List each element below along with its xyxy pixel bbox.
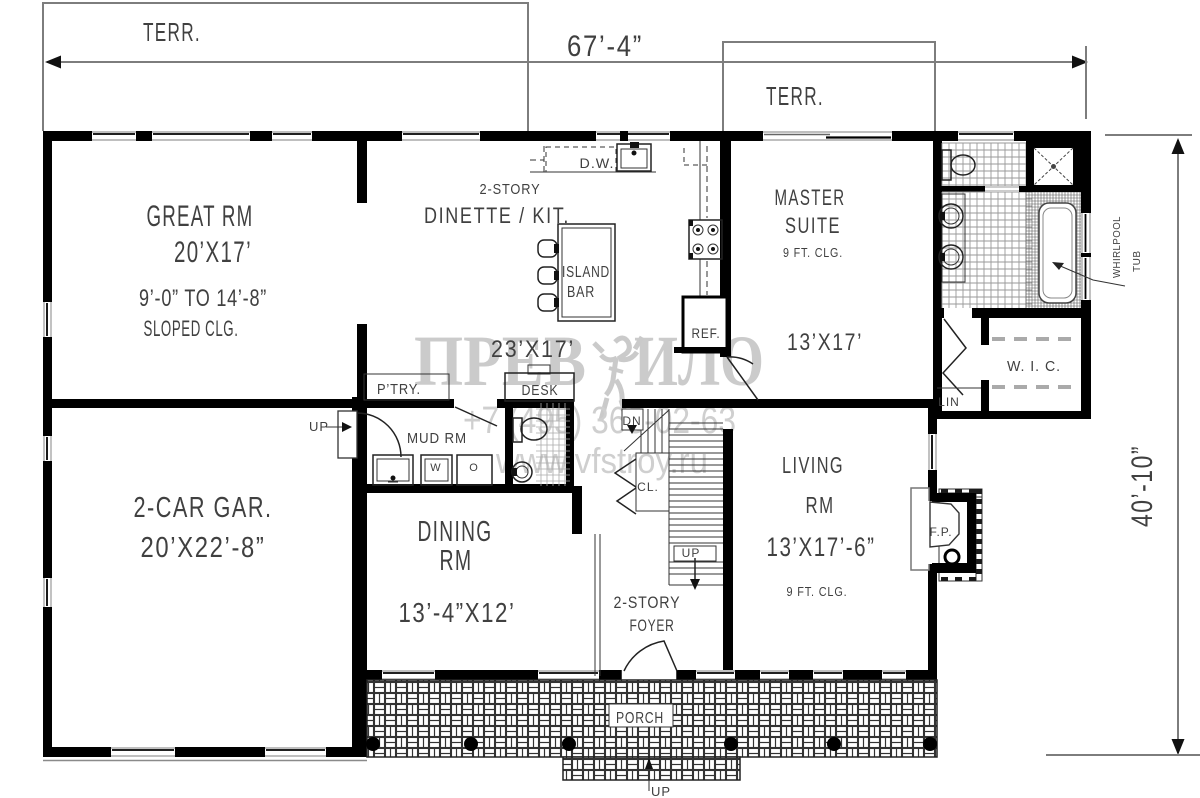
svg-text:TERR.: TERR. bbox=[143, 17, 201, 47]
svg-text:GREAT RM: GREAT RM bbox=[147, 200, 254, 233]
svg-text:WHIRLPOOL: WHIRLPOOL bbox=[1112, 216, 1123, 278]
svg-text:SUITE: SUITE bbox=[785, 213, 841, 238]
svg-text:W. I. C.: W. I. C. bbox=[1007, 358, 1061, 375]
svg-text:F.P.: F.P. bbox=[929, 525, 952, 539]
svg-text:BAR: BAR bbox=[567, 284, 595, 301]
svg-text:DESK: DESK bbox=[522, 382, 559, 399]
svg-text:2-STORY: 2-STORY bbox=[480, 181, 541, 198]
svg-text:LIN: LIN bbox=[938, 395, 960, 409]
svg-text:CL.: CL. bbox=[637, 480, 659, 494]
svg-text:23’X17’: 23’X17’ bbox=[491, 336, 575, 363]
svg-text:RM: RM bbox=[440, 545, 473, 577]
svg-text:13’-4”X12’: 13’-4”X12’ bbox=[399, 597, 516, 628]
svg-text:FOYER: FOYER bbox=[630, 616, 675, 635]
svg-text:9’-0” TO 14’-8”: 9’-0” TO 14’-8” bbox=[139, 285, 267, 312]
svg-text:ISLAND: ISLAND bbox=[562, 264, 610, 281]
svg-text:DINING: DINING bbox=[418, 516, 493, 548]
svg-text:W: W bbox=[430, 462, 441, 474]
svg-text:MUD RM: MUD RM bbox=[407, 430, 467, 447]
svg-text:TERR.: TERR. bbox=[766, 81, 824, 111]
svg-text:UP: UP bbox=[682, 546, 701, 560]
svg-text:40’-10”: 40’-10” bbox=[1126, 445, 1159, 527]
svg-text:2-STORY: 2-STORY bbox=[614, 593, 681, 612]
svg-text:O: O bbox=[469, 462, 479, 474]
svg-text:DINETTE / KIT.: DINETTE / KIT. bbox=[424, 203, 570, 228]
svg-text:P’TRY.: P’TRY. bbox=[377, 381, 421, 398]
svg-text:9 FT. CLG.: 9 FT. CLG. bbox=[787, 584, 848, 599]
svg-text:9 FT. CLG.: 9 FT. CLG. bbox=[783, 245, 843, 260]
svg-text:D.W.: D.W. bbox=[580, 155, 615, 171]
svg-text:RM: RM bbox=[806, 492, 835, 518]
svg-text:LIVING: LIVING bbox=[782, 452, 844, 478]
svg-text:20’X22’-8”: 20’X22’-8” bbox=[141, 532, 266, 564]
svg-text:MASTER: MASTER bbox=[775, 185, 846, 210]
svg-text:SLOPED CLG.: SLOPED CLG. bbox=[144, 316, 239, 341]
svg-text:UP: UP bbox=[309, 419, 329, 434]
svg-text:13’X17’: 13’X17’ bbox=[787, 329, 863, 356]
svg-text:67’-4”: 67’-4” bbox=[567, 30, 643, 63]
svg-text:13’X17’-6”: 13’X17’-6” bbox=[767, 532, 876, 562]
svg-text:REF.: REF. bbox=[692, 325, 721, 341]
svg-text:TUB: TUB bbox=[1132, 251, 1143, 273]
svg-text:20’X17’: 20’X17’ bbox=[174, 236, 252, 269]
svg-text:PORCH: PORCH bbox=[616, 710, 664, 727]
svg-text:UP: UP bbox=[651, 784, 671, 798]
svg-text:2-CAR GAR.: 2-CAR GAR. bbox=[134, 492, 273, 524]
svg-text:DN: DN bbox=[622, 414, 641, 428]
